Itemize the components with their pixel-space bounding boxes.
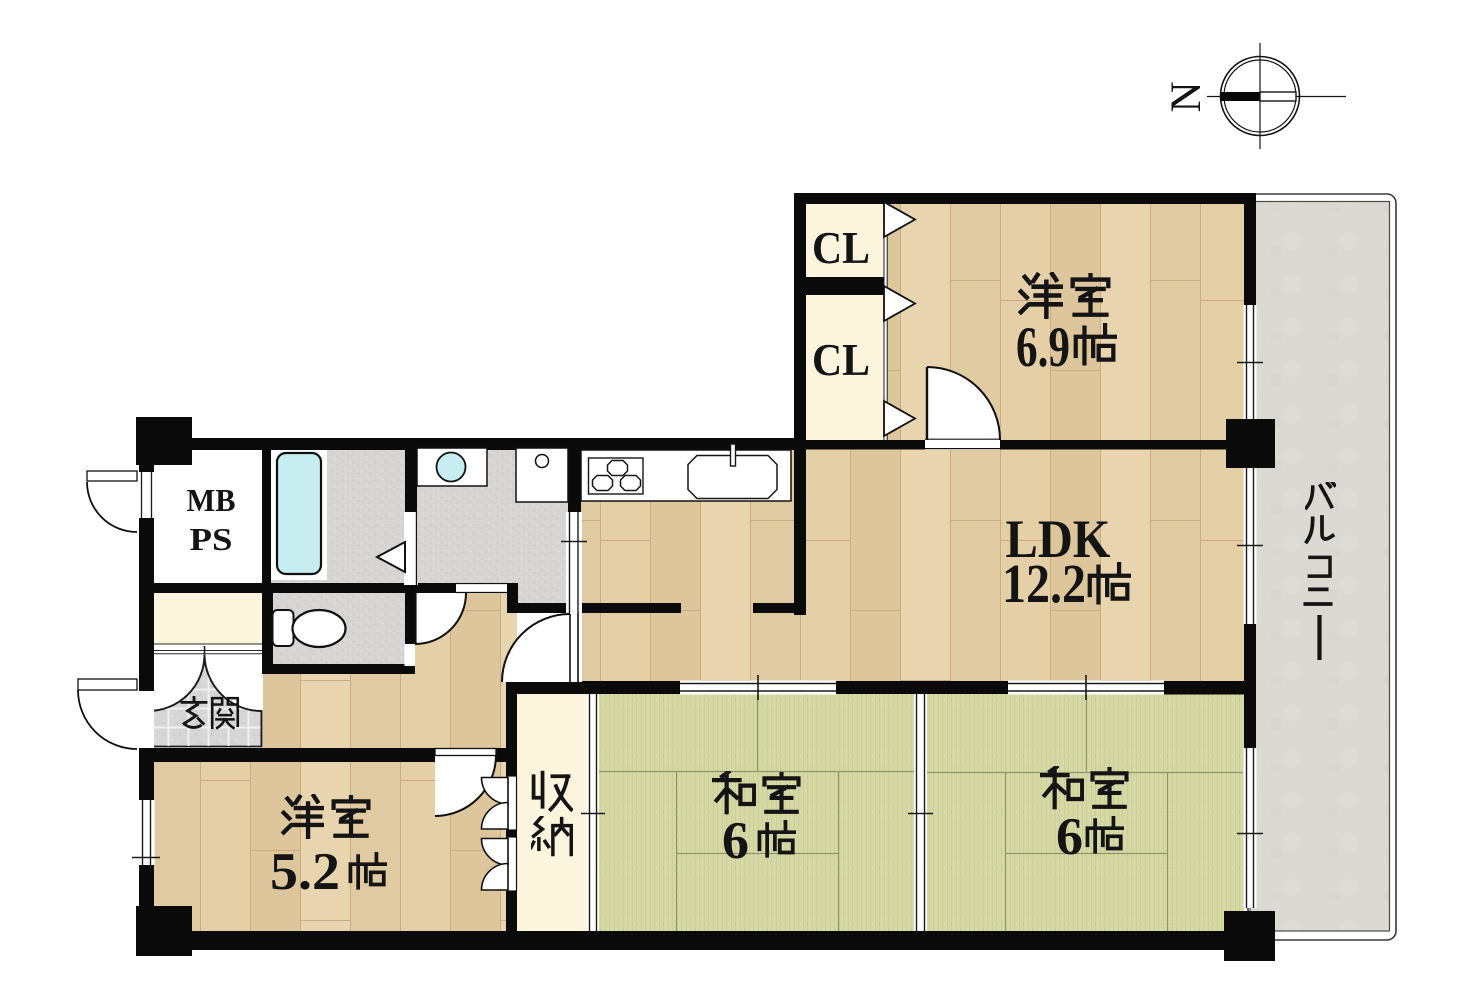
svg-text:6: 6 [1056, 808, 1083, 866]
svg-text:CL: CL [812, 334, 870, 385]
svg-text:PS: PS [190, 521, 233, 557]
svg-text:MB: MB [187, 482, 236, 518]
svg-text:6.9: 6.9 [1016, 316, 1070, 379]
svg-text:CL: CL [812, 222, 870, 273]
svg-text:N: N [1163, 81, 1210, 112]
svg-text:12.2: 12.2 [1002, 553, 1086, 614]
svg-text:5.2: 5.2 [270, 843, 340, 901]
svg-text:6: 6 [722, 812, 749, 870]
